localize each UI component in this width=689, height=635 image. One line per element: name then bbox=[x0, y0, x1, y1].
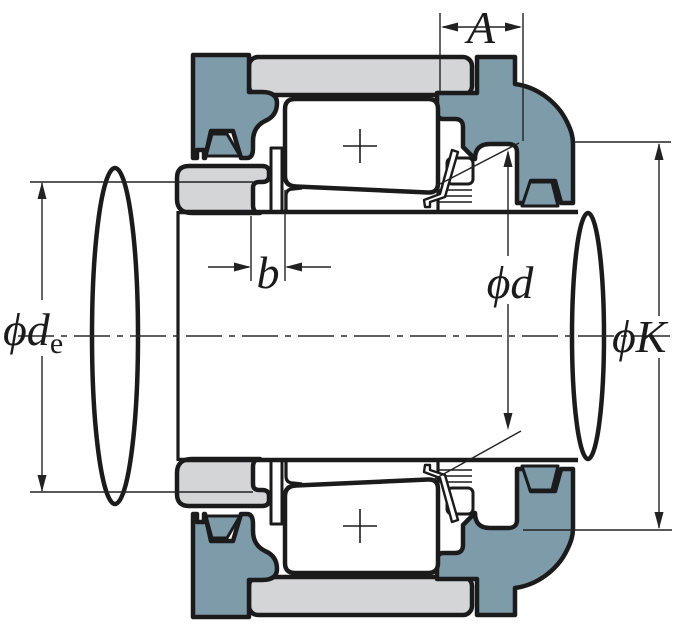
seal-ring-right bbox=[522, 182, 558, 206]
dim-label-de: ϕde bbox=[3, 304, 63, 360]
bearing-cross-section-diagram: A b ϕde ϕd ϕK bbox=[0, 0, 689, 635]
dim-label-d: ϕd bbox=[487, 257, 535, 308]
dim-label-k: ϕK bbox=[612, 311, 669, 362]
locknut bbox=[177, 166, 269, 213]
section-top-half bbox=[177, 55, 578, 213]
diagram-canvas: A b ϕde ϕd ϕK bbox=[0, 0, 689, 635]
dim-label-a: A bbox=[464, 2, 496, 53]
outer-ring bbox=[249, 57, 472, 95]
lock-washer bbox=[271, 148, 282, 212]
sleeve-end bbox=[286, 188, 302, 212]
dim-label-b: b bbox=[257, 247, 280, 298]
